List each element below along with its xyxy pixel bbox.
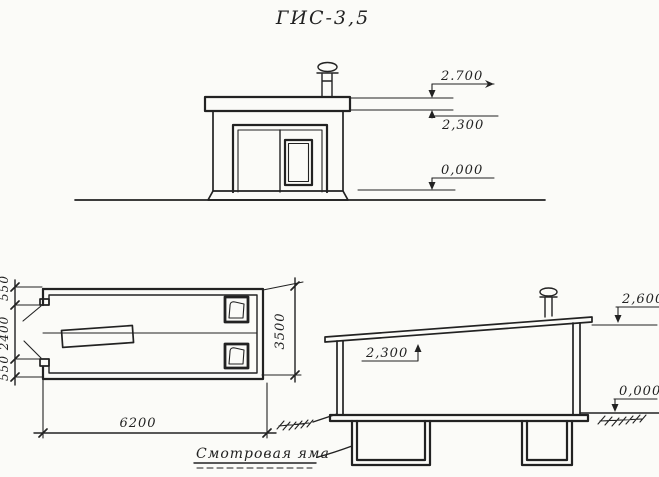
front-chimney-pipe [322, 74, 332, 97]
section-pit-right-outer [522, 421, 572, 465]
plan-vent-bottom [225, 344, 248, 368]
down-arrowhead-icon [612, 404, 619, 412]
plan-dim-6200-label: 6200 [119, 416, 156, 431]
section-chimney [540, 288, 557, 317]
section-pit-left [352, 421, 430, 465]
front-level-ground-label: 0,000 [441, 163, 483, 178]
front-level-mark-roof-bottom: 2,300 [429, 110, 499, 133]
plan-dim-3500-label: 3500 [273, 312, 288, 349]
plan-dim-550-bottom-label: 550 [0, 355, 11, 381]
section-chimney-pipe [545, 298, 552, 317]
section-level-mark-ceiling: 2,300 [362, 344, 422, 361]
section-left-wall [337, 341, 343, 415]
section-ground-right-hatch [598, 415, 646, 426]
front-roof-level-lines [350, 98, 453, 110]
front-door-window-inner [289, 144, 309, 182]
front-chimney-cap [318, 63, 337, 72]
section-level-mark-ground: 0,000 [612, 384, 659, 412]
section-roof-slab [325, 317, 592, 342]
section-floor-slab [330, 415, 588, 421]
section-pit-right-inner [527, 421, 567, 460]
plan-vent-bottom-flap [229, 348, 244, 364]
plan-dim-2400-label: 2400 [0, 316, 11, 352]
section-pit-left-inner [357, 421, 425, 460]
plan-door-leaf [62, 326, 134, 348]
plan-door-leaf-rect [62, 326, 134, 348]
plan-door-jamb-bottom [40, 359, 49, 366]
front-elevation-view: 2.700 2,300 0,000 [75, 63, 545, 201]
front-level-roof-top-label: 2.700 [440, 69, 483, 84]
section-right-wall [573, 323, 580, 415]
section-level-roof-label: 2,600 [621, 292, 659, 307]
down-arrowhead-icon [429, 90, 436, 98]
plan-dim-right: 3500 [262, 278, 303, 382]
section-pit-right [522, 421, 572, 465]
section-level-mark-roof: 2,600 [592, 292, 659, 325]
plan-view: 550 2400 550 3500 6200 [0, 275, 303, 438]
front-roof-slab [205, 97, 350, 111]
front-chimney [317, 63, 338, 98]
section-pit-left-outer [352, 421, 430, 465]
plan-door-jamb-top [40, 299, 49, 305]
plan-vent-top [225, 297, 248, 322]
section-level-ground-shelf [614, 399, 657, 408]
plan-dim-bottom: 6200 [34, 379, 276, 438]
section-ground-left-hatch [277, 420, 313, 430]
down-arrowhead-icon [615, 315, 622, 323]
section-ground-right [580, 413, 659, 426]
section-level-ceiling-label: 2,300 [365, 346, 408, 361]
front-door [233, 125, 327, 192]
plan-dim-left-leaders [23, 306, 41, 358]
down-arrowhead-icon [429, 182, 436, 190]
plan-outer-walls [43, 289, 263, 379]
section-chimney-cap [540, 288, 557, 296]
plan-dim-left: 550 2400 550 [0, 275, 43, 385]
front-level-roof-bottom-label: 2,300 [441, 118, 484, 133]
section-pit-callout: Смотровая яма [194, 446, 352, 468]
pit-label: Смотровая яма [196, 446, 330, 462]
up-arrowhead-icon [415, 344, 422, 352]
section-level-ground-label: 0,000 [619, 384, 659, 399]
front-level-mark-ground: 0,000 [358, 163, 494, 190]
section-ground-left [277, 414, 337, 430]
section-level-roof-shelf [616, 307, 659, 319]
technical-drawing-canvas: ГИС-3,5 2.700 [0, 0, 659, 477]
drawing-title: ГИС-3,5 [275, 7, 370, 29]
plan-vent-top-flap [229, 302, 244, 318]
front-level-mark-roof-top: 2.700 [429, 69, 495, 98]
plan-dim-550-top-label: 550 [0, 275, 11, 301]
